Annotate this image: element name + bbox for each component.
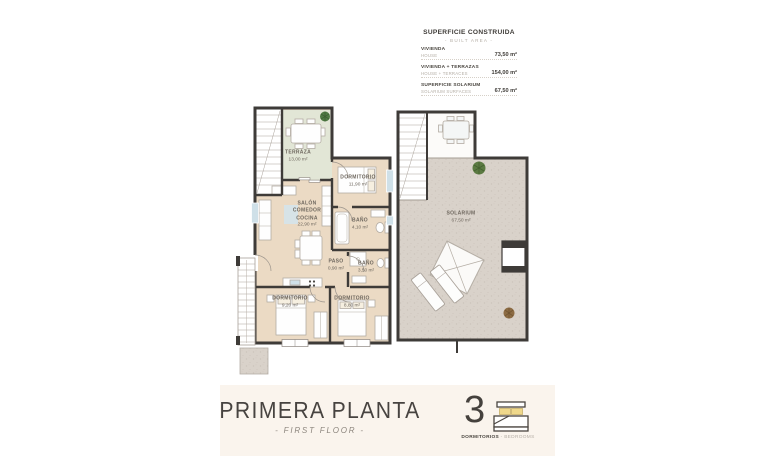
room-label-terraza: TERRAZA 13,00 m² [285, 150, 311, 165]
room-label-paso: PASO 0,90 m² [328, 259, 344, 274]
legend-row-vivienda: VIVIENDA HOUSE 73,50 m² [421, 47, 517, 60]
legend-subtitle: - BUILT AREA - [421, 38, 517, 43]
toilet [385, 258, 389, 268]
sink [352, 276, 366, 283]
dining-table [300, 236, 322, 260]
floor-plan-sheet: TERRAZA 13,00 m² SALÓN COMEDOR COCINA 22… [0, 0, 770, 460]
plan-subtitle: - FIRST FLOOR - [275, 426, 365, 435]
legend-row-solarium: SUPERFICIE SOLARIUM SOLARIUM SURFACES 67… [421, 83, 517, 96]
room-label-bano-2: BAÑO 3,50 m² [358, 261, 374, 276]
kitchen-counter [283, 278, 322, 287]
room-label-salon: SALÓN COMEDOR COCINA 22,90 m² [293, 200, 321, 229]
sideboard [272, 186, 296, 195]
room-label-solarium: SOLARIUM 67,50 m² [446, 211, 475, 226]
stair-landing [240, 348, 268, 374]
plan-title: PRIMERA PLANTA [219, 397, 420, 424]
legend-title: SUPERFICIE CONSTRUIDA [421, 29, 517, 36]
main-unit [236, 108, 394, 374]
outdoor-kitchen [502, 241, 525, 272]
solarium-unit [398, 112, 527, 353]
built-area-legend: SUPERFICIE CONSTRUIDA - BUILT AREA - VIV… [421, 29, 517, 96]
bedrooms-count: 3 [464, 389, 485, 432]
room-label-dormitorio-2: DORMITORIO 9,20 m² [272, 296, 307, 311]
solarium-plant-icon [473, 162, 486, 175]
solarium-plant-brown-icon [504, 308, 515, 319]
bedrooms-label: DORMITORIOS - BEDROOMS [461, 435, 534, 440]
legend-row-vivienda-terrazas: VIVIENDA + TERRAZAS HOUSE + TERRACES 154… [421, 65, 517, 78]
sofa [259, 200, 271, 240]
room-label-bano-1: BAÑO 4,10 m² [352, 218, 368, 233]
bed-icon [491, 401, 531, 438]
sink [371, 210, 385, 217]
kitchen-sink [290, 280, 300, 285]
room-label-dormitorio-1: DORMITORIO 11,90 m² [340, 175, 375, 190]
footer-band: PRIMERA PLANTA - FIRST FLOOR - 3 DORMITO… [220, 385, 555, 456]
terrace-plant-icon [320, 112, 330, 122]
room-label-dormitorio-3: DORMITORIO 8,80 m² [334, 296, 369, 311]
